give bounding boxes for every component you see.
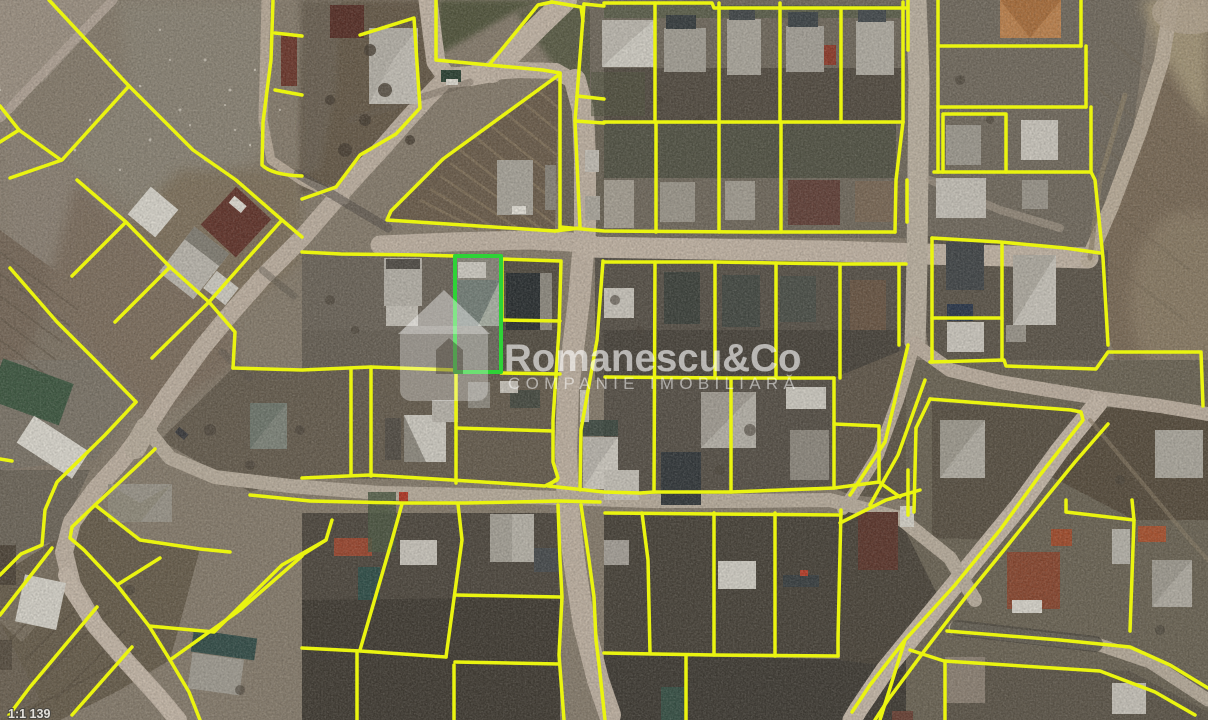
svg-text:1:1 139: 1:1 139	[8, 707, 50, 720]
svg-text:COMPANIE IMOBILIARĂ: COMPANIE IMOBILIARĂ	[508, 374, 800, 393]
